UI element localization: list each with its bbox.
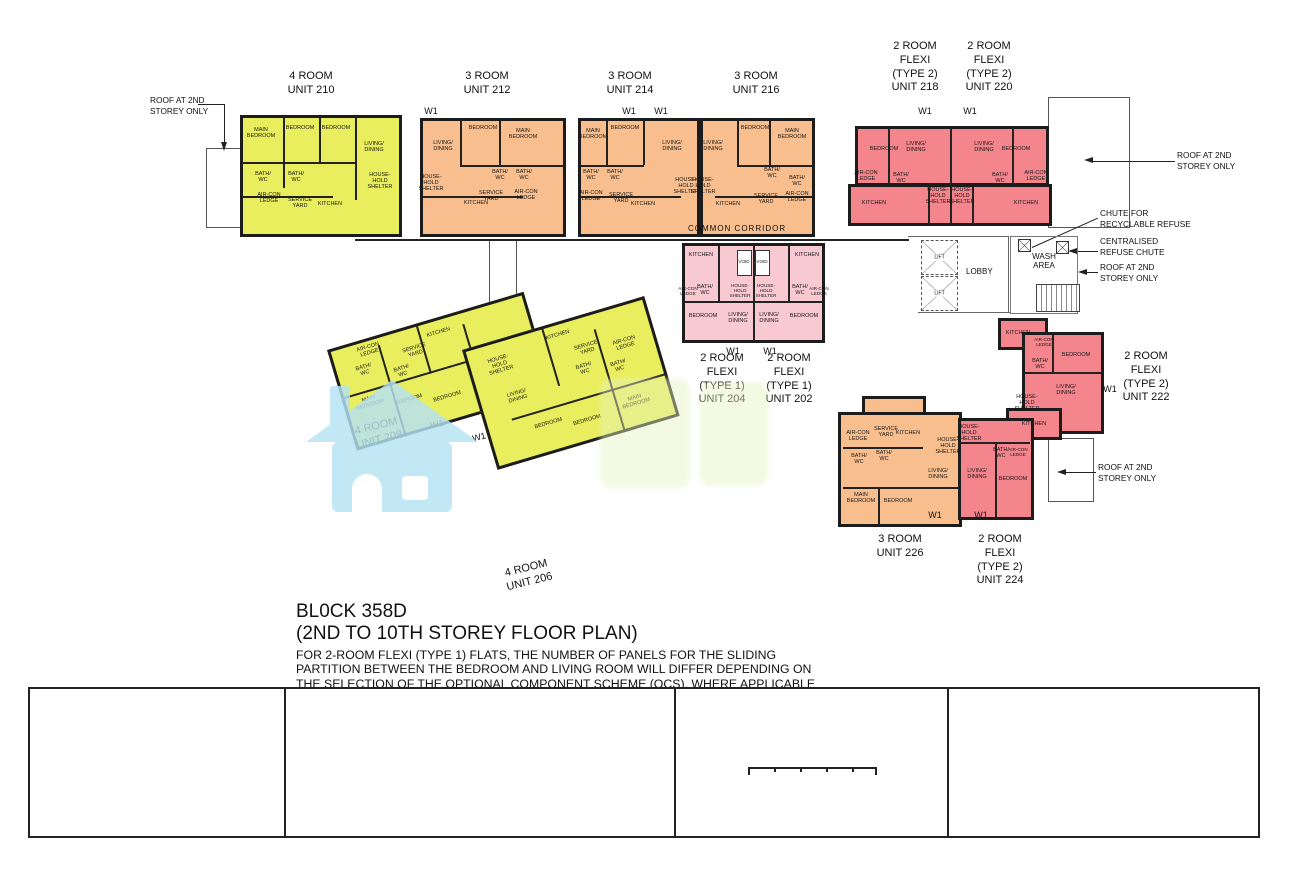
room-label: LIVING/ DINING (974, 141, 994, 153)
unit-210-title: 4 ROOM UNIT 210 (288, 70, 335, 98)
room-label: KITCHEN (1014, 200, 1038, 206)
wall (843, 487, 959, 489)
green-watermark (700, 382, 768, 486)
annotation-chute-recyclable: CHUTE FOR RECYCLABLE REFUSE (1100, 208, 1191, 230)
wall (1025, 372, 1101, 374)
roof-outline-top-left (206, 148, 243, 228)
room-label: AIR-CON LEDGE (1024, 170, 1047, 182)
room-label: MAIN BEDROOM (509, 128, 537, 140)
room-label: AIR-CON LEDGE (854, 170, 877, 182)
w1-label: W1 (654, 106, 668, 116)
lobby-line (1008, 236, 1009, 313)
room-label: HOUSE- HOLD SHELTER (950, 187, 975, 205)
room-label: LIVING/ DINING (759, 312, 779, 324)
house-window (402, 476, 428, 500)
wall (769, 121, 771, 165)
room-label: SERVICE YARD (874, 426, 898, 438)
wall (843, 447, 923, 449)
room-label: AIR-CON LEDGE (1034, 337, 1053, 347)
room-label: AIR-CON LEDGE (257, 192, 280, 204)
scale-tick (826, 767, 828, 772)
wall (460, 121, 462, 165)
block-title: BL0CK 358D (296, 601, 815, 623)
wall (684, 301, 823, 303)
wall (788, 245, 790, 301)
room-label: SERVICE YARD (609, 192, 633, 204)
room-label: BEDROOM (999, 476, 1027, 482)
room-label: BATH/ WC (492, 169, 508, 181)
room-label: AIR-CON LEDGE (514, 189, 537, 201)
room-label: MAIN BEDROOM (778, 128, 806, 140)
green-watermark (600, 378, 690, 488)
info-band (28, 687, 1260, 838)
wall (319, 118, 321, 162)
house-watermark (306, 370, 478, 512)
wash-area-label: WASH AREA (1032, 252, 1056, 270)
room-label: BATH/ WC (851, 453, 867, 465)
annotation-roof-mid-right: ROOF AT 2ND STOREY ONLY (1100, 262, 1158, 284)
room-label: SERVICE YARD (288, 197, 312, 209)
room-label: BATH/ WC (583, 169, 599, 181)
room-label: KITCHEN (862, 200, 886, 206)
room-label: BATH/ WC (288, 171, 304, 183)
room-label: MAIN BEDROOM (579, 128, 607, 140)
wall (283, 118, 285, 188)
room-label: KITCHEN (1022, 421, 1046, 427)
lift-label: LIFT (933, 290, 945, 296)
room-label: BATH/ WC (1032, 358, 1048, 370)
room-label: KITCHEN (896, 430, 920, 436)
unit-220-title: 2 ROOM FLEXI (TYPE 2) UNIT 220 (966, 40, 1013, 95)
room-label: HOUSE- HOLD SHELTER (419, 174, 444, 192)
annotation-roof-top-left: ROOF AT 2ND STOREY ONLY (150, 95, 208, 117)
room-label: BEDROOM (741, 125, 769, 131)
divider (947, 689, 949, 836)
room-label: BEDROOM (322, 125, 350, 131)
block-note: FOR 2-ROOM FLEXI (TYPE 1) FLATS, THE NUM… (296, 648, 815, 692)
room-label: AIR-CON LEDGE (785, 191, 808, 203)
room-label: BEDROOM (286, 125, 314, 131)
room-label: LIVING/ DINING (928, 468, 948, 480)
room-label: BEDROOM (790, 313, 818, 319)
room-label: BEDROOM (884, 498, 912, 504)
scale-tick (774, 767, 776, 772)
annotation-roof-top-right: ROOF AT 2ND STOREY ONLY (1177, 150, 1235, 172)
room-label: BATH/ WC (992, 172, 1008, 184)
wall (355, 118, 357, 200)
leader-line (1076, 251, 1098, 252)
wall (460, 165, 563, 167)
room-label: KITCHEN (689, 252, 713, 258)
room-label: HOUSE- HOLD SHELTER (730, 283, 751, 298)
room-label: AIR-CON LEDGE (846, 430, 869, 442)
room-label: SERVICE YARD (754, 193, 778, 205)
room-label: BEDROOM (870, 146, 898, 152)
wall (1012, 128, 1014, 184)
arrow-left-icon (1057, 469, 1066, 475)
arrow-left-icon (1068, 248, 1077, 254)
wall (737, 121, 739, 165)
room-label: AIR-CON LEDGE (579, 190, 602, 202)
leader-line (1092, 161, 1175, 162)
unit-218-220-block-top (855, 126, 1049, 186)
room-label: BATH/ WC (764, 167, 780, 179)
divider (284, 689, 286, 836)
title-block: BL0CK 358D (2ND TO 10TH STOREY FLOOR PLA… (296, 601, 815, 692)
unit-216-title: 3 ROOM UNIT 216 (733, 70, 780, 98)
stairs (1036, 284, 1080, 312)
common-corridor-label: COMMON CORRIDOR (688, 224, 786, 233)
room-label: AIR-CON LEDGE (809, 286, 828, 296)
w1-label: W1 (424, 106, 438, 116)
wall (878, 489, 880, 525)
room-label: HOUSE- HOLD SHELTER (368, 172, 393, 190)
room-label: LIVING/ DINING (433, 140, 453, 152)
floor-plan-canvas: ROOF AT 2ND STOREY ONLY ROOF AT 2ND STOR… (0, 0, 1304, 874)
room-label: VOID (738, 259, 749, 264)
room-label: MAIN BEDROOM (847, 492, 875, 504)
room-label: HOUSE- HOLD SHELTER (957, 424, 982, 442)
room-label: BATH/ WC (607, 169, 623, 181)
room-label: KITCHEN (716, 201, 740, 207)
w1-label: W1 (974, 510, 988, 520)
room-label: AIR-CON LEDGE (1008, 447, 1027, 457)
room-label: LIVING/ DINING (703, 140, 723, 152)
w1-label: W1 (918, 106, 932, 116)
room-label: HOUSE- HOLD SHELTER (691, 177, 716, 195)
room-label: LIVING/ DINING (906, 141, 926, 153)
unit-226-title: 3 ROOM UNIT 226 (877, 533, 924, 561)
room-label: BEDROOM (611, 125, 639, 131)
unit-222-title: 2 ROOM FLEXI (TYPE 2) UNIT 222 (1123, 350, 1170, 405)
room-label: BATH/ WC (789, 175, 805, 187)
wall (888, 128, 890, 184)
room-label: LIVING/ DINING (728, 312, 748, 324)
room-label: KITCHEN (631, 201, 655, 207)
roof-outline-bottom-right (1048, 438, 1094, 502)
wall (950, 128, 952, 224)
divider (674, 689, 676, 836)
room-label: BEDROOM (689, 313, 717, 319)
w1-label: W1 (1103, 384, 1117, 394)
arrow-down-icon (221, 142, 227, 151)
house-door (352, 474, 382, 512)
room-label: HOUSE- HOLD SHELTER (1015, 394, 1040, 412)
room-label: KITCHEN (318, 201, 342, 207)
room-label: BATH/ WC (876, 450, 892, 462)
room-label: BATH/ WC (792, 284, 808, 296)
room-label: AIR-CON LEDGE (678, 286, 697, 296)
wall (423, 196, 523, 198)
room-label: BEDROOM (1002, 146, 1030, 152)
wall (643, 121, 645, 165)
room-label: KITCHEN (1006, 330, 1030, 336)
scale-tick (875, 767, 877, 775)
room-label: MAIN BEDROOM (247, 127, 275, 139)
wall (581, 165, 644, 167)
wall (243, 162, 356, 164)
lift-label: LIFT (933, 254, 945, 260)
house-body (332, 442, 452, 512)
room-label: LIVING/ DINING (364, 141, 384, 153)
wall (499, 121, 501, 165)
block-subtitle: (2ND TO 10TH STOREY FLOOR PLAN) (296, 623, 815, 645)
lift-shaft: LIFT (921, 276, 958, 311)
unit-218-title: 2 ROOM FLEXI (TYPE 2) UNIT 218 (892, 40, 939, 95)
scale-tick (852, 767, 854, 772)
leader-line (1066, 472, 1096, 473)
unit-224-title: 2 ROOM FLEXI (TYPE 2) UNIT 224 (977, 533, 1024, 588)
scale-tick (748, 767, 750, 775)
arrow-left-icon (1078, 269, 1087, 275)
unit-202-title: 2 ROOM FLEXI (TYPE 1) UNIT 202 (766, 352, 813, 407)
room-label: LIVING/ DINING (967, 468, 987, 480)
room-label: VOID (756, 259, 767, 264)
lobby-line (908, 236, 1009, 237)
unit-214-title: 3 ROOM UNIT 214 (607, 70, 654, 98)
w1-label: W1 (963, 106, 977, 116)
room-label: LIVING/ DINING (662, 140, 682, 152)
leader-line (1087, 272, 1098, 273)
w1-label: W1 (622, 106, 636, 116)
room-label: LIVING/ DINING (1056, 384, 1076, 396)
room-label: BATH/ WC (697, 284, 713, 296)
wall (718, 245, 720, 301)
scale-tick (800, 767, 802, 772)
room-label: BEDROOM (469, 125, 497, 131)
room-label: BATH/ WC (893, 172, 909, 184)
arrow-left-icon (1084, 157, 1093, 163)
chute-box (1018, 239, 1031, 252)
corridor-line (355, 239, 909, 241)
unit-212-title: 3 ROOM UNIT 212 (464, 70, 511, 98)
leader-line (224, 104, 225, 144)
room-label: BATH/ WC (993, 447, 1009, 459)
room-label: BATH/ WC (516, 169, 532, 181)
unit-206-title: 4 ROOM UNIT 206 (502, 557, 554, 595)
lift-shaft: LIFT (921, 240, 958, 275)
annotation-centralised-chute: CENTRALISED REFUSE CHUTE (1100, 236, 1165, 258)
room-label: BEDROOM (1062, 352, 1090, 358)
lobby-label: LOBBY (966, 267, 993, 276)
room-label: KITCHEN (795, 252, 819, 258)
w1-label: W1 (928, 510, 942, 520)
room-label: BATH/ WC (255, 171, 271, 183)
lobby-line (918, 312, 1010, 313)
house-roof (306, 380, 478, 442)
scale-bar (748, 767, 876, 769)
annotation-roof-bottom-right: ROOF AT 2ND STOREY ONLY (1098, 462, 1156, 484)
room-label: HOUSE- HOLD SHELTER (926, 187, 951, 205)
room-label: HOUSE- HOLD SHELTER (756, 283, 777, 298)
room-label: KITCHEN (464, 200, 488, 206)
